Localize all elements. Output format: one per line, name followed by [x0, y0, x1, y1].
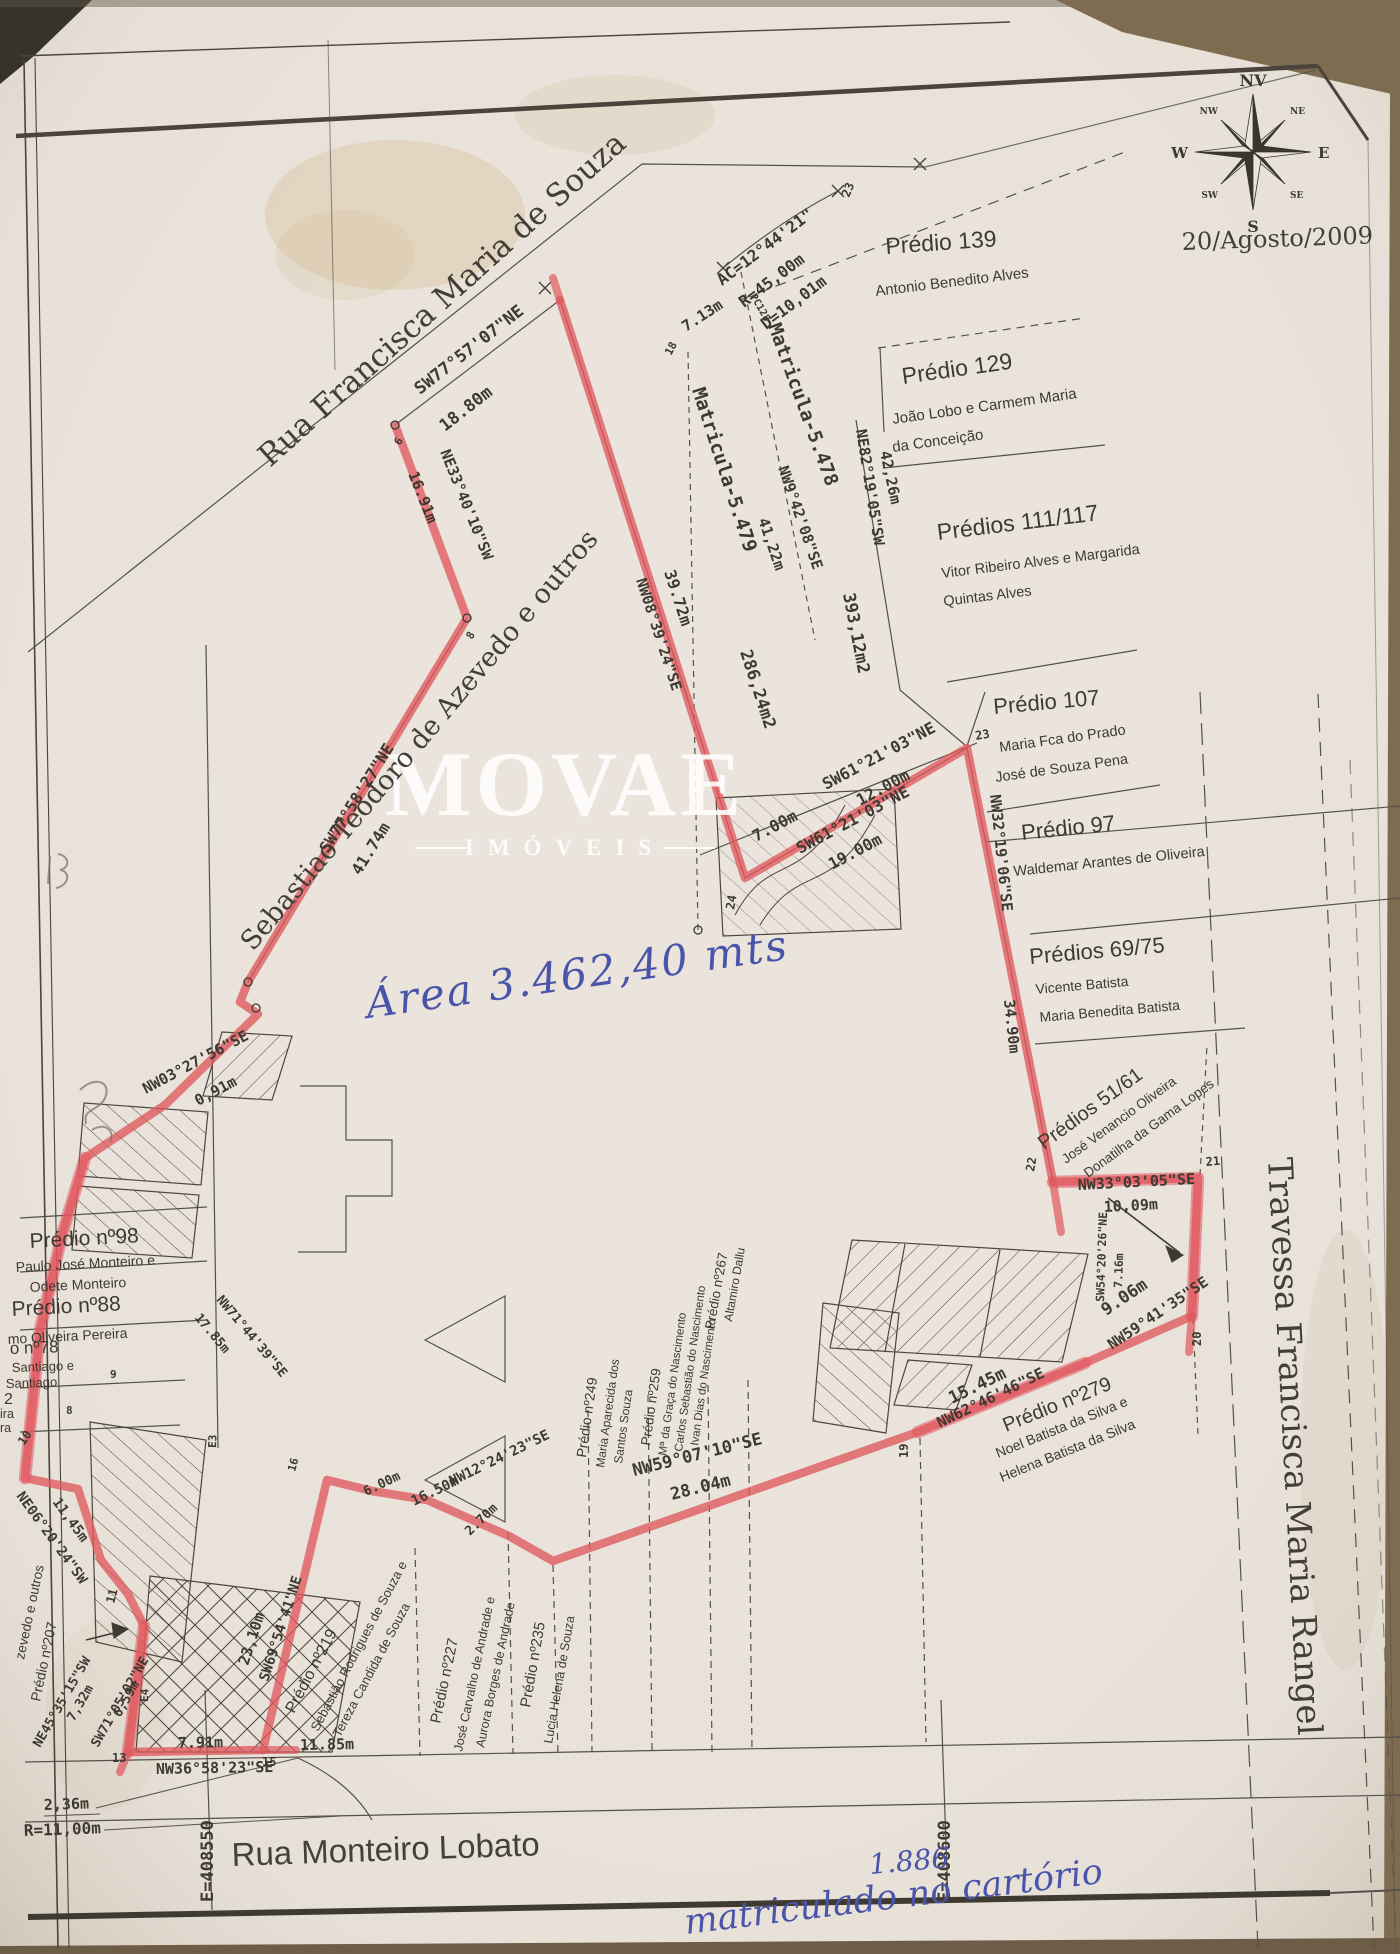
vertex-15: 15 [262, 1755, 276, 1769]
watermark-brand: MOVAE [385, 733, 746, 835]
marker-e4: E4 [138, 1688, 151, 1702]
vertex-21: 21 [1205, 1154, 1221, 1169]
vertex-22: 22 [1023, 1156, 1039, 1173]
compass-north-label: NV [1239, 71, 1267, 90]
dist-791: 7.91m [178, 1733, 223, 1752]
compass-ne-label: NE [1290, 107, 1305, 117]
dist-1009: 10,09m [1103, 1195, 1158, 1216]
parcel-partial-2: 2 [4, 1391, 13, 1408]
survey-map-photo: NV S W E NE SE SW NW 20/Agosto/2009 MOVA… [0, 0, 1400, 1954]
dist-1185: 11.85m [300, 1735, 354, 1754]
compass-nw-label: NW [1200, 107, 1219, 117]
parcel-78-owner2: Santiago [6, 1374, 58, 1391]
compass-east-label: E [1318, 144, 1329, 162]
vertex-13: 13 [112, 1751, 126, 1765]
paper-stain [275, 210, 415, 300]
compass-west-label: W [1170, 144, 1189, 162]
dist-236: 2,36m [44, 1794, 90, 1814]
vertex-23: 23 [974, 727, 991, 743]
watermark-subtitle: IMÓVEIS [465, 834, 665, 860]
parcel-78-owner1: Santiago e [12, 1358, 75, 1375]
parcel-78-title: o nº78 [9, 1337, 58, 1358]
compass-se-label: SE [1290, 191, 1303, 201]
parcel-partial-ira: ira [0, 1407, 14, 1421]
marker-e3: E3 [206, 1434, 219, 1448]
vertex-20: 20 [1190, 1332, 1204, 1346]
vertex-19: 19 [897, 1444, 911, 1458]
survey-map-canvas: NV S W E NE SE SW NW 20/Agosto/2009 MOVA… [0, 0, 1400, 1954]
parcel-partial-ra: ra [0, 1421, 11, 1435]
bearing-3658: NW36°58'23"SE [156, 1758, 274, 1778]
building-hatched [813, 1303, 899, 1433]
dist-r11: R=11,00m [23, 1818, 101, 1840]
dist-716: 7.16m [1111, 1253, 1126, 1288]
vertex-8: 8 [66, 1404, 73, 1417]
compass-sw-label: SW [1201, 191, 1218, 201]
vertex-24: 24 [723, 894, 739, 911]
coord-e408550: E=408550 [198, 1820, 218, 1902]
vertex-9: 9 [110, 1368, 117, 1381]
